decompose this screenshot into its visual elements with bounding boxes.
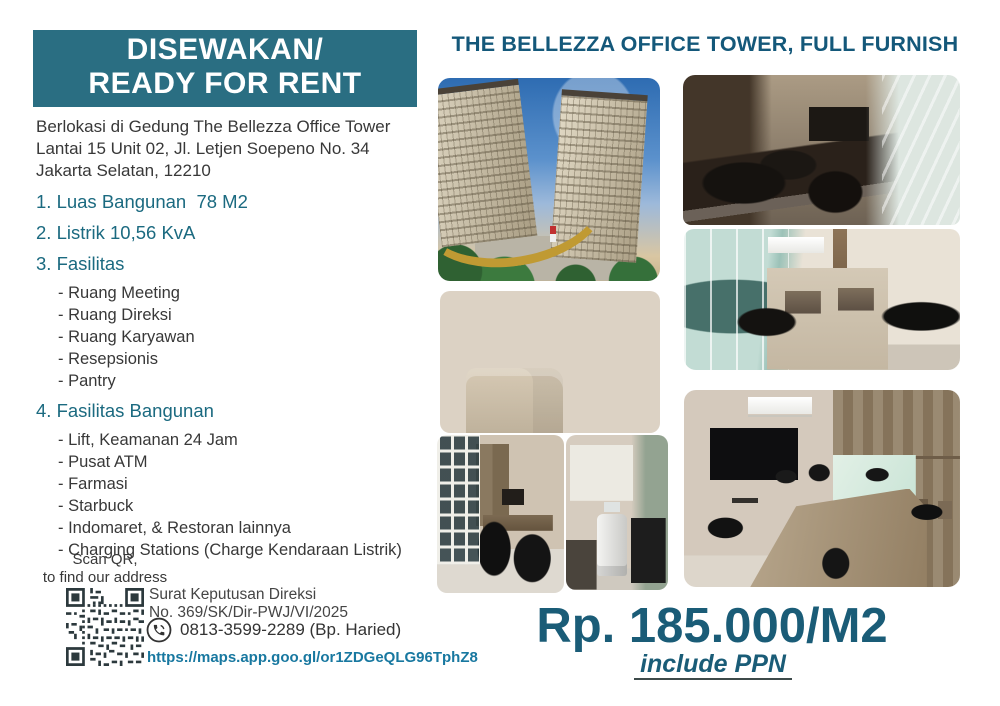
list-item: - Indomaret, & Restoran lainnya [58,517,436,539]
building-facility-items: - Lift, Keamanan 24 Jam - Pusat ATM - Fa… [36,429,436,561]
facility-items: - Ruang Meeting - Ruang Direksi - Ruang … [36,282,436,392]
price-note-wrap: include PPN [503,651,923,680]
list-item: - Starbuck [58,495,436,517]
location-line: Jakarta Selatan, 12210 [36,160,390,182]
phone-number: 0813-3599-2289 (Bp. Haried) [180,620,401,640]
list-item: - Pantry [58,370,436,392]
page-title: THE BELLEZZA OFFICE TOWER, FULL FURNISH [445,32,965,57]
qr-caption-line1: Scan QR, [38,551,172,569]
location-line: Berlokasi di Gedung The Bellezza Office … [36,116,390,138]
rental-flyer: DISEWAKAN/ READY FOR RENT Berlokasi di G… [0,0,1000,706]
maps-link[interactable]: https://maps.app.goo.gl/or1ZDGeQLG96TphZ… [147,649,478,666]
location-text: Berlokasi di Gedung The Bellezza Office … [36,116,390,182]
photo-pantry-corner [566,435,668,590]
decree-line1: Surat Keputusan Direksi [149,586,348,604]
photo-workstation-room [437,435,564,593]
list-item: - Lift, Keamanan 24 Jam [58,429,436,451]
list-item: - Ruang Karyawan [58,326,436,348]
photo-meeting-room [684,390,960,587]
location-line: Lantai 15 Unit 02, Jl. Letjen Soepeno No… [36,138,390,160]
qr-caption-line2: to find our address [38,569,172,587]
spec-building-facilities: 4. Fasilitas Bangunan [36,399,436,423]
header-line2: READY FOR RENT [33,67,417,101]
photo-staff-office [684,229,960,370]
spec-facilities: 3. Fasilitas [36,252,436,276]
phone-contact: 0813-3599-2289 (Bp. Haried) [146,617,401,643]
list-item: - Resepsionis [58,348,436,370]
photo-building-exterior [438,78,660,281]
qr-caption: Scan QR, to find our address [38,551,172,587]
photo-director-office [683,75,960,225]
phone-icon [146,617,172,643]
list-item: - Ruang Direksi [58,304,436,326]
list-item: - Ruang Meeting [58,282,436,304]
photo-reception-area [440,291,660,433]
spec-power: 2. Listrik 10,56 KvA [36,221,436,245]
header-line1: DISEWAKAN/ [33,33,417,67]
list-item: - Farmasi [58,473,436,495]
spec-area: 1. Luas Bangunan 78 M2 [36,190,436,214]
list-item: - Pusat ATM [58,451,436,473]
spec-list: 1. Luas Bangunan 78 M2 2. Listrik 10,56 … [36,186,436,561]
header-banner: DISEWAKAN/ READY FOR RENT [33,30,417,107]
qr-code-icon [64,588,146,666]
price-note: include PPN [634,651,792,680]
price-text: Rp. 185.000/M2 [502,600,922,652]
